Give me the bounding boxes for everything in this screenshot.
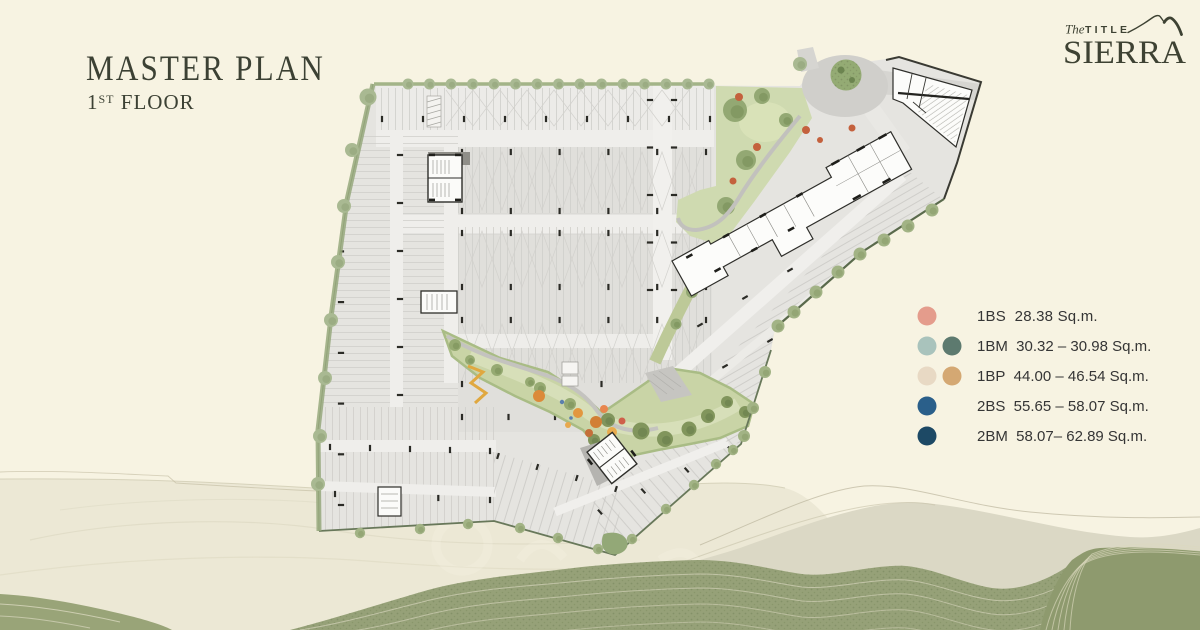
- svg-text:SIERRA: SIERRA: [1063, 35, 1186, 71]
- svg-text:MASTER PLAN: MASTER PLAN: [86, 48, 325, 88]
- svg-text:1ST FLOOR: 1ST FLOOR: [87, 90, 195, 114]
